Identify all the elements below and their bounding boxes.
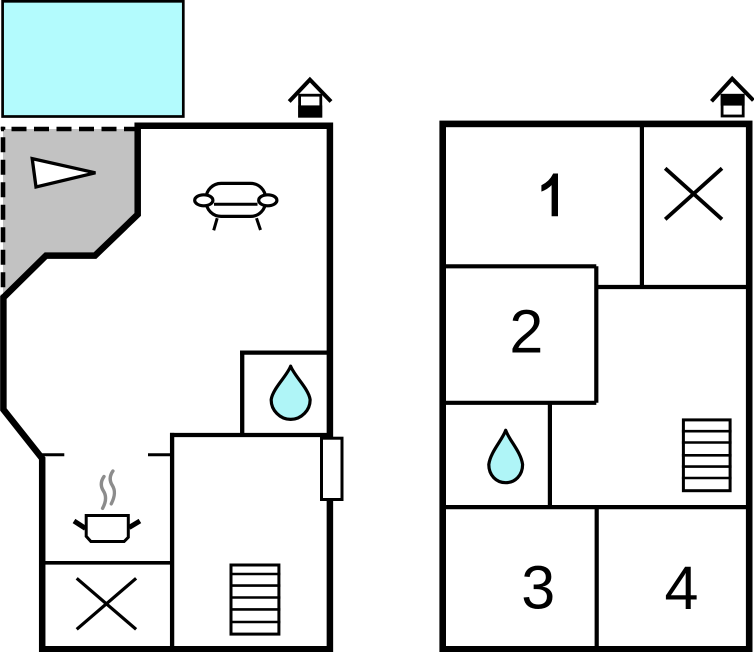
- svg-text:3: 3: [521, 554, 555, 622]
- svg-text:4: 4: [665, 554, 699, 622]
- svg-text:2: 2: [509, 298, 543, 366]
